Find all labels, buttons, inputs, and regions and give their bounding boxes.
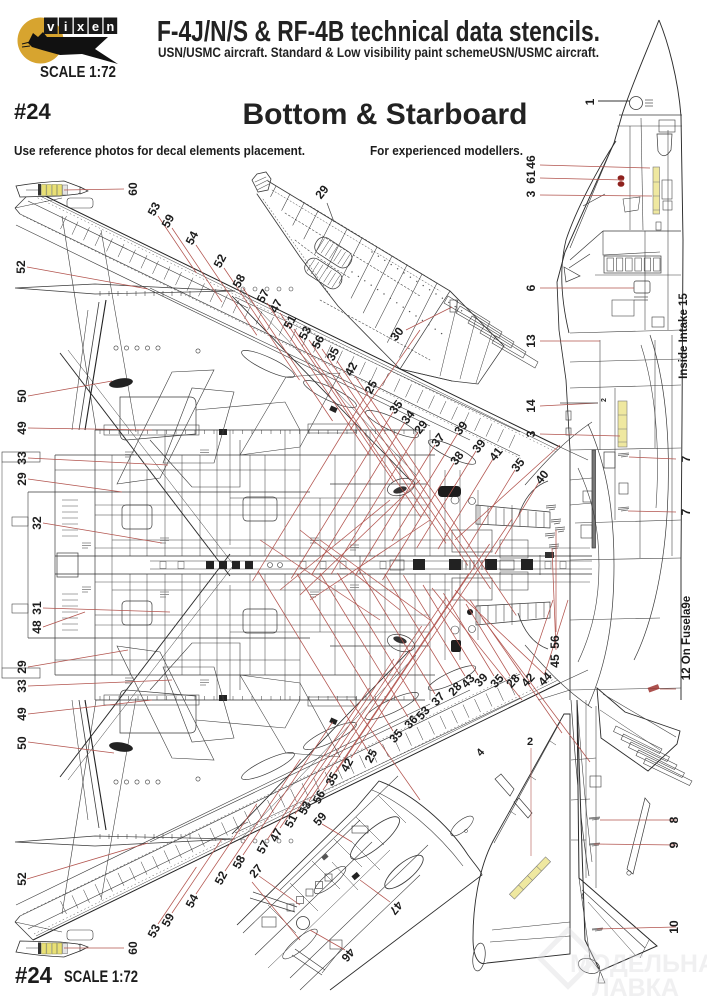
svg-text:#24: #24	[15, 962, 52, 988]
svg-text:2: 2	[527, 736, 533, 748]
svg-text:49: 49	[15, 421, 29, 435]
svg-text:Bottom & Starboard: Bottom & Starboard	[243, 98, 528, 131]
svg-text:32: 32	[30, 516, 44, 530]
svg-text:7: 7	[679, 508, 693, 515]
svg-text:For experienced modellers.: For experienced modellers.	[370, 144, 523, 158]
svg-text:60: 60	[126, 182, 140, 196]
svg-text:56: 56	[548, 635, 562, 649]
svg-text:7: 7	[679, 455, 693, 462]
svg-text:3: 3	[524, 430, 538, 437]
svg-text:31: 31	[30, 601, 44, 615]
svg-text:Use reference photos for decal: Use reference photos for decal elements …	[14, 144, 305, 158]
svg-text:6: 6	[524, 284, 538, 291]
svg-text:i: i	[64, 19, 68, 34]
svg-text:SCALE 1:72: SCALE 1:72	[64, 967, 138, 986]
svg-text:2: 2	[601, 398, 608, 402]
svg-text:USN/USMC aircraft. Standard &: USN/USMC aircraft. Standard & Low visibi…	[158, 45, 599, 60]
svg-text:60: 60	[126, 941, 140, 955]
svg-text:33: 33	[15, 451, 29, 465]
svg-text:49: 49	[15, 707, 29, 721]
svg-text:45: 45	[548, 654, 562, 668]
svg-text:e: e	[92, 19, 99, 34]
svg-text:10: 10	[667, 920, 681, 934]
svg-text:12 On Fusela9e: 12 On Fusela9e	[681, 596, 693, 680]
svg-text:50: 50	[15, 736, 29, 750]
svg-text:48: 48	[30, 620, 44, 634]
svg-text:8: 8	[667, 816, 681, 823]
svg-text:n: n	[106, 19, 114, 34]
svg-text:29: 29	[15, 472, 29, 486]
svg-text:29: 29	[15, 660, 29, 674]
svg-text:50: 50	[15, 389, 29, 403]
svg-text:46: 46	[524, 155, 538, 169]
svg-text:F-4J/N/S & RF-4B technical dat: F-4J/N/S & RF-4B technical data stencils…	[157, 16, 600, 48]
svg-text:#24: #24	[14, 99, 51, 124]
svg-text:14: 14	[524, 399, 538, 413]
svg-text:SCALE 1:72: SCALE 1:72	[40, 64, 116, 81]
svg-text:13: 13	[524, 334, 538, 348]
svg-text:v: v	[47, 19, 55, 34]
svg-text:Inside Intake 15: Inside Intake 15	[678, 293, 690, 379]
svg-text:52: 52	[15, 872, 29, 886]
svg-text:52: 52	[14, 260, 28, 274]
svg-text:61: 61	[524, 170, 538, 184]
svg-text:1: 1	[583, 98, 597, 105]
svg-text:9: 9	[667, 841, 681, 848]
svg-text:33: 33	[15, 679, 29, 693]
svg-text:ЛАВКА: ЛАВКА	[592, 974, 679, 1000]
svg-text:x: x	[77, 19, 85, 34]
svg-text:3: 3	[524, 190, 538, 197]
